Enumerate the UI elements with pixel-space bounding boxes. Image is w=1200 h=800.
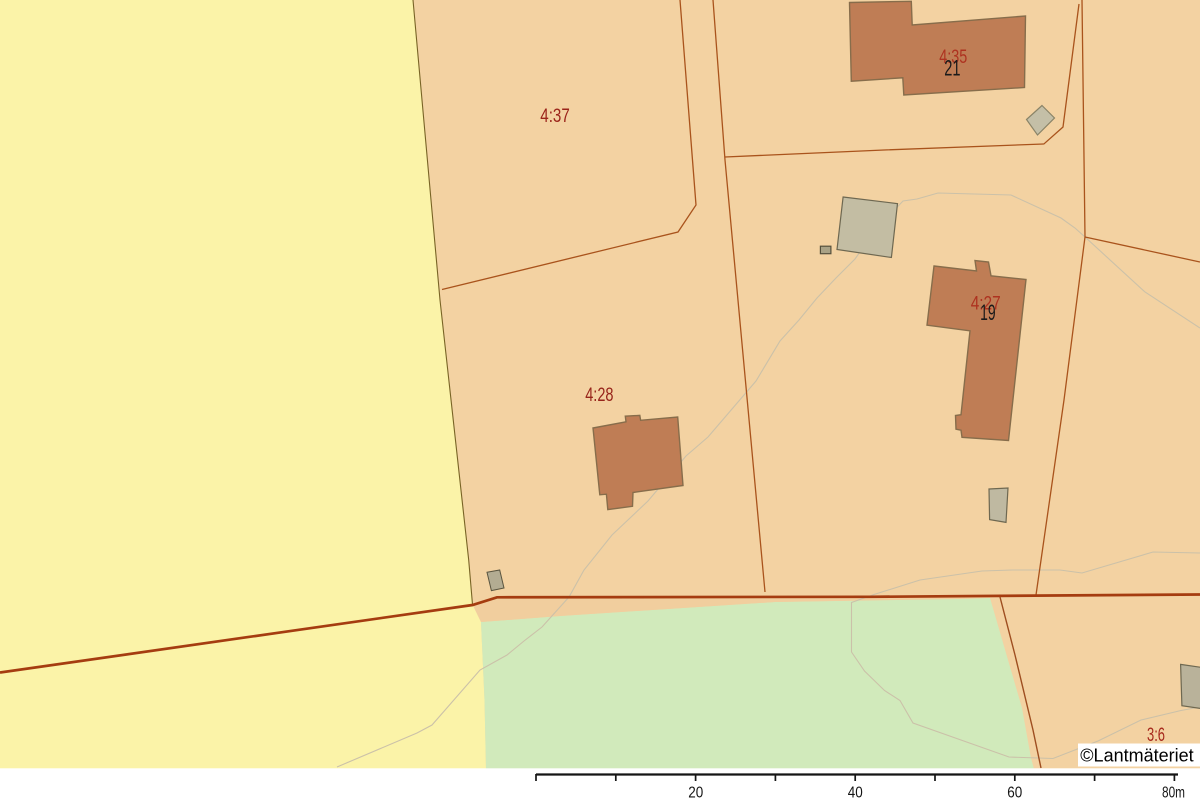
svg-text:21: 21 [944, 56, 960, 81]
svg-text:19: 19 [980, 300, 996, 325]
svg-text:©Lantmäteriet: ©Lantmäteriet [1080, 745, 1193, 765]
svg-text:4:37: 4:37 [540, 106, 570, 127]
svg-text:60: 60 [1007, 785, 1022, 800]
svg-text:80m: 80m [1162, 785, 1185, 800]
svg-text:4:28: 4:28 [585, 385, 613, 406]
svg-text:40: 40 [848, 785, 863, 800]
svg-text:3:6: 3:6 [1147, 725, 1165, 746]
svg-text:20: 20 [688, 785, 703, 800]
